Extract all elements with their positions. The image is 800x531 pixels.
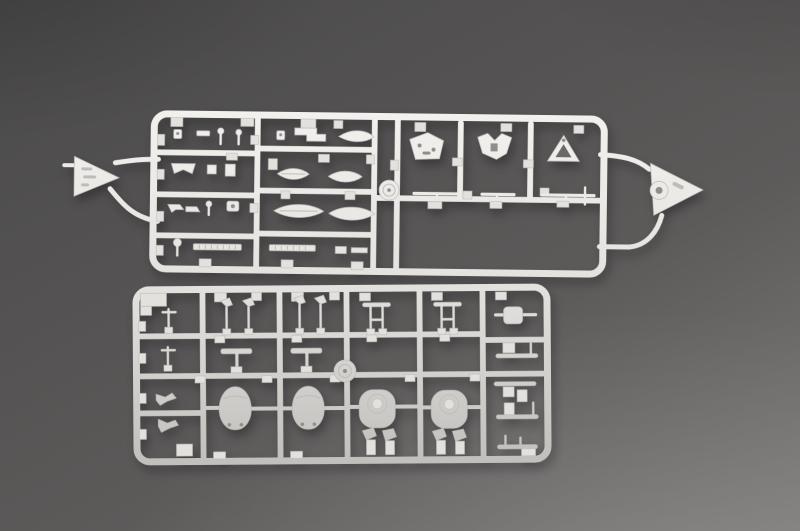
sprue-a-right-tag [599, 155, 703, 248]
deck-fitting-part [496, 343, 538, 358]
twin-mast-part [363, 303, 391, 335]
davit-pair [220, 298, 254, 335]
cleat-part [168, 204, 184, 212]
deck-fitting-part [497, 436, 537, 456]
boat-hull-part [329, 207, 375, 221]
photo-canvas [0, 0, 800, 531]
gun-turret-housing-part [203, 386, 280, 430]
embossed-mark [81, 167, 92, 170]
t-support-part [221, 349, 252, 373]
tag-runner [600, 155, 649, 170]
capped-turret-part [420, 390, 483, 428]
deck-fitting-part [496, 403, 538, 419]
boat-hull-part [339, 130, 374, 141]
bridge-windshield-part [171, 163, 195, 173]
flat-spar-part [414, 193, 459, 194]
deck-fitting-part [496, 307, 536, 324]
block-part [207, 165, 216, 174]
t-support-part [291, 348, 322, 372]
capped-turret-part [347, 389, 420, 428]
embossed-mark [81, 183, 89, 186]
tag-runner [599, 215, 661, 248]
ladder-strip-part [269, 245, 315, 252]
block-part [225, 164, 235, 176]
pedestal-wedge-pair [362, 428, 396, 455]
bar-fitting-part [351, 248, 367, 253]
sprue-a [63, 113, 704, 276]
davit-pair [293, 295, 326, 334]
boat-hull-part [328, 171, 362, 182]
twin-mast-part [434, 302, 462, 334]
gun-turret-housing-part [280, 386, 347, 429]
sprue-a-left-tag [64, 156, 159, 221]
cleat-part [186, 207, 200, 212]
anchor-part [156, 393, 176, 405]
pedestal-wedge-pair [432, 428, 466, 454]
sprues-illustration [0, 0, 800, 531]
block-part [335, 246, 346, 253]
embossed-mark [83, 175, 96, 178]
bar-fitting-part [197, 131, 210, 136]
anchor-part [158, 419, 178, 432]
deck-fitting-part [494, 382, 536, 402]
sprue-b [136, 287, 548, 462]
stepped-deckhouse-part [295, 128, 326, 141]
gun-platform-plate-part [409, 132, 443, 159]
